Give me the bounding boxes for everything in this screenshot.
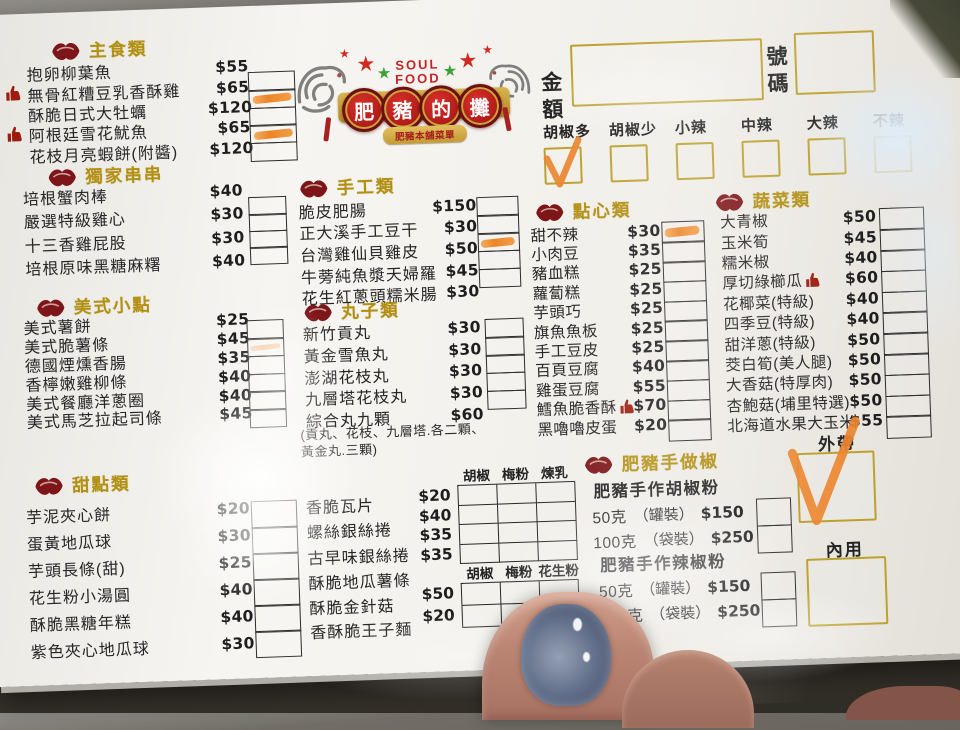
- menu-item-row: 花生紅蔥頭糯米腸$30: [301, 281, 480, 309]
- menu-list-main: 抱卵柳葉魚$55無骨紅糟豆乳香酥雞$65酥脆日式大牡蠣$120阿根廷雪花魷魚$6…: [26, 56, 251, 166]
- item-price: $65: [207, 78, 250, 97]
- topping-grid-a: [457, 481, 578, 564]
- item-price: $45: [212, 405, 253, 424]
- crispy-prices-a: $20$40$35$35: [410, 486, 453, 565]
- highlighter-mark: [252, 93, 291, 105]
- item-price: $40: [411, 506, 452, 527]
- thumbs-up-icon: [6, 125, 25, 144]
- topping-checkbox[interactable]: [497, 483, 537, 504]
- topping-checkbox[interactable]: [459, 504, 499, 525]
- order-checkbox[interactable]: [255, 629, 302, 658]
- item-name: 黑嚕嚕皮蛋: [537, 414, 634, 439]
- takeout-checkmark: [779, 413, 871, 532]
- logo-soulfood-text: SOULFOOD: [394, 57, 441, 87]
- item-price: $35: [412, 545, 453, 566]
- powder-pack: （袋裝）: [643, 527, 704, 550]
- order-checkbox[interactable]: [250, 141, 298, 162]
- item-price: $40: [841, 309, 880, 328]
- item-price: $25: [209, 311, 250, 330]
- item-price: $55: [206, 57, 249, 76]
- background-corner: [890, 0, 960, 78]
- star-icon: ★: [443, 64, 458, 80]
- checkbox-stack-skewers: [248, 198, 288, 266]
- topping-checkbox[interactable]: [536, 482, 576, 503]
- dinein-checkbox[interactable]: [806, 556, 888, 627]
- thumbs-up-icon: [5, 84, 24, 103]
- item-price: $50: [844, 391, 883, 410]
- item-price: $50: [843, 350, 882, 369]
- menu-list-skewers: 培根蟹肉棒$40嚴選特級雞心$30十三香雞屁股$30培根原味黑糖麻糬$40: [23, 178, 246, 280]
- item-price: $65: [208, 118, 251, 137]
- item-price: $120: [209, 139, 252, 158]
- checkbox-stack-balls: [485, 320, 527, 410]
- item-price: $25: [630, 338, 665, 357]
- spice-option: 中辣: [741, 113, 809, 178]
- menu-item-row: 花枝月亮蝦餅(附醬)$120: [29, 138, 252, 166]
- item-name: 花枝月亮蝦餅(附醬): [29, 137, 210, 167]
- item-price: $25: [630, 318, 665, 337]
- item-price: $35: [627, 241, 662, 260]
- item-price: $20: [633, 415, 668, 434]
- section-header-powders: 肥豬手做椒: [582, 448, 719, 478]
- star-icon: ★: [377, 66, 392, 82]
- item-price: $35: [210, 348, 251, 367]
- checkbox-stack-vegetables: [879, 209, 932, 439]
- item-price: $45: [432, 261, 479, 281]
- menu-item-row: 黑嚕嚕皮蛋$20: [537, 415, 668, 439]
- item-price: $50: [844, 370, 883, 389]
- powder-pack: （罐裝）: [633, 503, 694, 526]
- item-price: $30: [196, 228, 245, 248]
- topping-checkbox[interactable]: [499, 522, 539, 543]
- item-name: 香脆瓦片: [305, 491, 408, 520]
- item-price: $70: [632, 396, 667, 415]
- item-price: $40: [211, 367, 252, 386]
- lips-icon: [533, 200, 566, 225]
- item-price: $55: [632, 377, 667, 396]
- star-icon: ★: [339, 48, 350, 60]
- spice-option: 胡椒少: [609, 117, 677, 182]
- item-price: $25: [628, 260, 663, 279]
- item-price: $30: [212, 634, 255, 653]
- item-name: 花生紅蔥頭糯米腸: [301, 281, 434, 310]
- topping-header: 煉乳: [535, 461, 575, 482]
- topping-header: 梅粉: [496, 462, 536, 483]
- powder-pack: （袋裝）: [650, 601, 711, 624]
- item-price: $40: [212, 386, 253, 405]
- section-header-sweets: 甜點類: [33, 470, 131, 498]
- checkbox-stack-dimsum: [661, 222, 712, 441]
- item-price: $30: [436, 318, 481, 338]
- checkbox-stack-main: [248, 72, 298, 162]
- item-price: $40: [839, 248, 878, 267]
- topping-header: 梅粉: [499, 560, 539, 581]
- item-name: 紫色夾心地瓜球: [30, 632, 213, 662]
- item-price: $30: [439, 383, 484, 403]
- item-price: $50: [414, 584, 455, 607]
- menu-list-sweets: 芋泥夾心餅$20蛋黃地瓜球$30芋頭長條(甜)$25花生粉小湯圓$40酥脆黑糖年…: [26, 494, 256, 664]
- item-price: $30: [438, 362, 483, 382]
- powder-price: $250: [717, 601, 761, 620]
- order-checkbox[interactable]: [253, 552, 300, 581]
- number-input-box[interactable]: [794, 30, 876, 95]
- logo-medallions: 肥豬的攤: [0, 0, 948, 17]
- logo-tassel: [323, 117, 331, 141]
- logo-medallion: 的: [418, 85, 464, 131]
- menu-item-row: 美式馬芝拉起司條$45: [26, 404, 253, 431]
- spice-option: 小辣: [675, 115, 743, 180]
- powder-qty: 50克: [592, 505, 627, 528]
- spice-option: 不辣: [872, 108, 940, 173]
- topping-checkbox[interactable]: [498, 503, 538, 524]
- lips-icon: [297, 176, 330, 201]
- item-price: $60: [840, 269, 879, 288]
- topping-header: 胡椒: [460, 562, 500, 583]
- order-checkbox[interactable]: [253, 578, 300, 607]
- highlighter-mark: [250, 343, 280, 351]
- order-checkbox[interactable]: [250, 246, 289, 266]
- topping-header: 胡椒: [457, 464, 497, 485]
- powder-checkboxes: [761, 573, 798, 627]
- menu-list-american: 美式薯餅$25美式脆薯條$45德國煙燻香腸$35香檸嫩雞柳條$40美式餐廳洋蔥圈…: [23, 310, 253, 431]
- amount-input-box[interactable]: [570, 38, 764, 107]
- item-price: $40: [210, 580, 253, 599]
- spice-option-label: 中辣: [741, 113, 808, 136]
- highlighter-mark: [665, 226, 701, 238]
- powder-qty: 100克: [593, 529, 637, 553]
- order-checkbox[interactable]: [254, 604, 301, 633]
- powder-price: $150: [700, 503, 744, 522]
- item-price: $50: [842, 330, 881, 349]
- topping-checkbox[interactable]: [462, 605, 502, 628]
- thumb-nail: [521, 604, 611, 706]
- item-price: $25: [628, 280, 663, 299]
- crispy-prices-b: $50$20: [414, 584, 455, 628]
- item-price: $45: [210, 329, 251, 348]
- item-price: $20: [414, 606, 455, 629]
- logo-banner: 肥豬本舖菜單: [383, 124, 468, 144]
- item-price: $120: [208, 98, 251, 117]
- item-price: $40: [841, 289, 880, 308]
- spice-checkbox[interactable]: [675, 142, 714, 180]
- item-price: $45: [839, 228, 878, 247]
- item-price: $50: [432, 239, 479, 259]
- item-price: $30: [209, 526, 252, 545]
- checkbox-stack-sweets: [251, 502, 302, 659]
- spice-checkbox[interactable]: [807, 137, 846, 175]
- checkbox-stack-american: [246, 321, 287, 428]
- item-price: $30: [433, 282, 480, 302]
- item-name: 美式馬芝拉起司條: [26, 403, 213, 433]
- menu-list-dimsum: 甜不辣$30小肉豆$35豬血糕$25蘿蔔糕$25芋頭巧$25旗魚魚板$25手工豆…: [530, 221, 667, 439]
- powder-pack: （罐裝）: [640, 577, 701, 600]
- logo-medallion: 肥: [341, 87, 387, 133]
- item-price: $30: [437, 340, 482, 360]
- spice-option-label: 不辣: [872, 108, 939, 131]
- spice-checkbox[interactable]: [544, 146, 583, 184]
- checkbox-stack-handmade: [476, 198, 521, 288]
- item-price: $35: [412, 525, 453, 546]
- spice-options-row: 胡椒多胡椒少小辣中辣大辣不辣: [543, 108, 941, 185]
- item-price: $50: [838, 207, 877, 226]
- powder-group-title: 肥豬手作胡椒粉: [593, 474, 720, 502]
- item-price: $25: [629, 299, 664, 318]
- highlighter-mark: [253, 128, 292, 140]
- crispy-names-a: 香脆瓦片螺絲銀絲捲古早味銀絲捲酥脆地瓜薯條: [305, 491, 410, 596]
- spice-checkbox[interactable]: [609, 144, 648, 182]
- topping-header: 花生粉: [538, 559, 578, 580]
- item-price: $20: [410, 486, 451, 507]
- order-checkbox[interactable]: [761, 598, 797, 627]
- menu-paper: ★ ★ ★ ★ ★ ★ SOULFOOD 肥豬的攤 肥豬本舖菜單 金額 號碼 胡…: [0, 0, 960, 687]
- item-price: $40: [631, 357, 666, 376]
- lips-icon: [33, 473, 66, 498]
- order-checkbox[interactable]: [487, 389, 527, 410]
- spice-option-label: 胡椒少: [609, 117, 676, 140]
- topping-checkbox[interactable]: [460, 524, 500, 545]
- logo-medallion: 攤: [457, 83, 503, 129]
- order-checkbox[interactable]: [761, 572, 797, 601]
- item-price: $40: [195, 181, 244, 201]
- orange-checkmark: [539, 135, 585, 191]
- item-name: 酥脆金針菇: [309, 592, 412, 620]
- order-checkbox[interactable]: [252, 526, 299, 555]
- powder-price: $150: [707, 576, 751, 595]
- star-icon: ★: [458, 50, 478, 72]
- order-checkbox[interactable]: [249, 408, 287, 429]
- number-label: 號碼: [766, 43, 794, 98]
- spice-option-label: 大辣: [806, 110, 873, 133]
- order-checkbox[interactable]: [668, 419, 712, 442]
- item-price: $25: [210, 553, 253, 572]
- topping-checkbox[interactable]: [462, 583, 502, 606]
- topping-checkbox[interactable]: [458, 485, 498, 506]
- item-name: 古早味銀絲捲: [307, 542, 410, 571]
- spice-checkbox[interactable]: [873, 135, 912, 173]
- powder-group-title: 肥豬手作辣椒粉: [600, 548, 727, 576]
- item-price: $20: [208, 499, 251, 518]
- spice-option: 大辣: [806, 110, 874, 175]
- balls-combo-note: (貢丸、花枝、九層塔.各二顆、黃金丸.三顆): [300, 420, 486, 460]
- powder-price: $250: [710, 527, 754, 546]
- order-checkbox[interactable]: [479, 267, 522, 288]
- item-price: $30: [195, 205, 244, 225]
- powder-rows: 50克（罐裝）$150 100克（袋裝）$250: [592, 499, 754, 555]
- item-price: $40: [197, 252, 246, 272]
- lips-icon: [582, 452, 615, 477]
- menu-list-balls: 新竹貢丸$30黃金雪魚丸$30澎湖花枝丸$30九層塔花枝丸$30綜合丸九顆$60: [302, 316, 484, 431]
- item-name: 香酥脆王子麵: [310, 616, 413, 644]
- highlighter-mark: [481, 236, 516, 247]
- item-price: $30: [431, 218, 478, 238]
- item-name: 螺絲銀絲捲: [306, 516, 409, 545]
- star-icon: ★: [482, 44, 493, 56]
- spice-option-label: 小辣: [675, 115, 742, 138]
- topping-checkbox[interactable]: [537, 501, 577, 522]
- item-price: $150: [430, 196, 477, 216]
- crispy-names-b: 酥脆金針菇香酥脆王子麵: [309, 592, 413, 644]
- order-checkbox[interactable]: [886, 415, 932, 439]
- star-icon: ★: [356, 54, 376, 76]
- menu-list-handmade: 脆皮肥腸$150正大溪手工豆干$30台灣雞仙貝雞皮$50牛蒡純魚漿天婦羅$45花…: [298, 194, 480, 308]
- spice-option: 胡椒多: [543, 120, 611, 185]
- topping-checkbox[interactable]: [538, 521, 578, 542]
- amount-label: 金額: [541, 69, 569, 124]
- spice-checkbox[interactable]: [741, 140, 780, 178]
- menu-list-vegetables: 大青椒$50玉米筍$45糯米椒$40厚切綠櫛瓜$60花椰菜(特級)$40四季豆(…: [720, 206, 884, 436]
- order-checkbox[interactable]: [251, 500, 298, 529]
- item-name: 培根原味黑糖麻糬: [25, 250, 198, 280]
- item-price: $40: [211, 607, 254, 626]
- thumbs-up-icon: [805, 272, 823, 290]
- item-price: $30: [626, 221, 661, 240]
